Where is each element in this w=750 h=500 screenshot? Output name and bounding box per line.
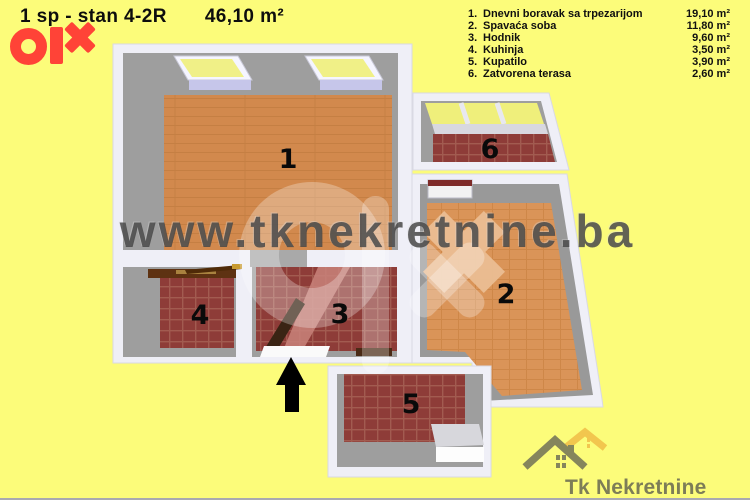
legend-label: Zatvorena terasa (483, 69, 672, 81)
room-label-5: 5 (402, 389, 421, 420)
room-label-1: 1 (279, 144, 298, 175)
legend-num: 5. (468, 57, 483, 69)
room-label-3: 3 (331, 299, 350, 330)
terrace-windows (425, 103, 544, 124)
legend-row: 4. Kuhinja 3,50 m² (468, 45, 730, 57)
legend-num: 4. (468, 45, 483, 57)
legend-area: 3,90 m² (672, 57, 730, 69)
legend-num: 6. (468, 69, 483, 81)
bathroom-block (328, 366, 491, 477)
legend-area: 9,60 m² (672, 33, 730, 45)
title-area: 46,10 m² (205, 6, 284, 28)
legend-label: Kuhinja (483, 45, 672, 57)
legend-num: 3. (468, 33, 483, 45)
legend-row: 5. Kupatilo 3,90 m² (468, 57, 730, 69)
legend-area: 3,50 m² (672, 45, 730, 57)
bathtub (431, 424, 484, 462)
legend-area: 2,60 m² (672, 69, 730, 81)
legend-label: Kupatilo (483, 57, 672, 69)
legend-row: 6. Zatvorena terasa 2,60 m² (468, 69, 730, 81)
legend-label: Hodnik (483, 33, 672, 45)
room-label-2: 2 (497, 279, 516, 310)
room-legend: 1. Dnevni boravak sa trpezarijom 19,10 m… (468, 9, 730, 80)
legend-row: 3. Hodnik 9,60 m² (468, 33, 730, 45)
room-label-6: 6 (481, 134, 500, 165)
tk-nekretnine-logo-icon (512, 425, 622, 480)
entrance-threshold (260, 346, 330, 357)
radiator (428, 180, 472, 198)
olx-logo-icon (8, 22, 103, 70)
watermark-text: www.tknekretnine.ba (55, 204, 700, 258)
room-label-4: 4 (191, 300, 210, 331)
tk-nekretnine-wordmark: Tk Nekretnine (565, 476, 750, 500)
entrance-arrow-icon (276, 357, 306, 412)
